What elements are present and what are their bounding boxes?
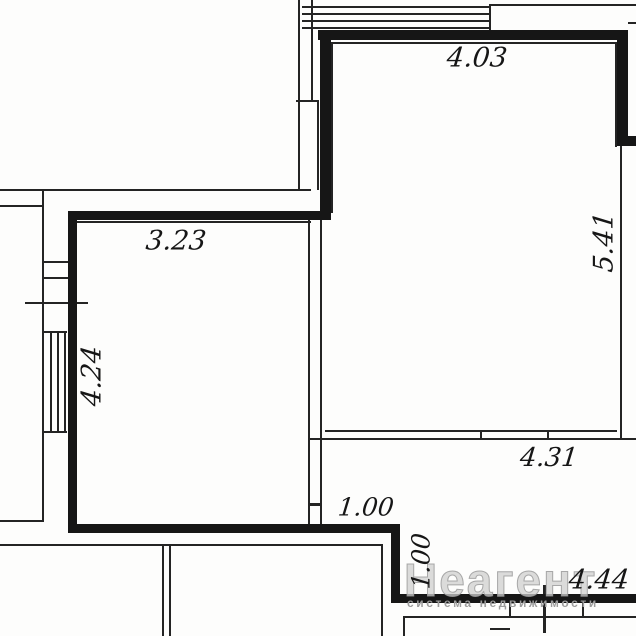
dim-hall-width: 4.31 <box>518 443 579 473</box>
line-mid-wall-right <box>320 220 322 525</box>
wall-big-room-top <box>318 30 628 40</box>
floor-plan-canvas: Неагент система недвижимости 4.035.413.2… <box>0 0 636 636</box>
wall-step <box>391 524 400 602</box>
line-mid-wall-tick <box>308 503 322 506</box>
wall-big-room-jog <box>617 136 636 146</box>
line-top-right-edge <box>489 4 636 6</box>
line-window-pane-3 <box>64 332 66 433</box>
line-below-big-room <box>308 438 636 440</box>
line-left-inner-face <box>331 42 333 213</box>
line-top-band-3 <box>302 20 490 22</box>
line-window-cap-bottom <box>43 431 67 433</box>
line-window-tick-2 <box>547 430 549 440</box>
wall-big-room-right <box>617 30 628 144</box>
line-lower-vert-right <box>381 544 383 636</box>
line-top-col2-left <box>298 101 300 190</box>
line-top-band-1 <box>302 6 490 8</box>
dim-step-width: 1.00 <box>337 493 396 522</box>
watermark-tagline: система недвижимости <box>407 596 599 610</box>
line-top-right-stub <box>628 22 636 24</box>
line-left-bottom-cap <box>0 520 44 522</box>
dim-step-height: 1.00 <box>407 532 436 591</box>
line-right-inner-vert <box>620 146 622 440</box>
dim-bottom-wall-width: 4.44 <box>567 565 630 596</box>
wall-big-room-left <box>320 30 331 220</box>
line-top-col-right <box>311 0 313 102</box>
line-window-pane-1 <box>50 332 52 433</box>
wall-left-room-top <box>68 211 331 220</box>
dim-left-room-height: 4.24 <box>77 344 108 407</box>
line-lower-long-h <box>0 544 383 546</box>
line-left-room-inner-top <box>75 221 311 223</box>
line-top-band-4 <box>302 27 490 29</box>
line-lower-partition-2 <box>169 546 171 636</box>
line-left-outer-vert <box>42 189 44 522</box>
line-balcony-left <box>403 616 405 636</box>
dim-top-room-height: 5.41 <box>589 210 620 273</box>
line-top-col-left <box>298 0 300 102</box>
dim-left-room-width: 3.23 <box>144 226 207 257</box>
line-left-wall-tick <box>25 302 88 304</box>
line-top-band-2 <box>302 13 490 15</box>
line-upper-left-h1 <box>0 189 311 191</box>
line-window-tick-1 <box>480 430 482 440</box>
line-top-col2-right <box>317 101 319 190</box>
line-balcony-h <box>403 616 636 618</box>
line-mid-wall-left <box>308 220 310 525</box>
wall-left-room-bottom <box>68 524 400 533</box>
line-window-cap-top <box>43 331 67 333</box>
line-lower-partition-1 <box>162 546 164 636</box>
line-balcony-stub <box>490 628 510 630</box>
line-big-room-inner-bot <box>325 430 617 432</box>
line-upper-left-h2 <box>0 205 44 207</box>
dim-top-room-width: 4.03 <box>445 43 508 74</box>
line-window-pane-2 <box>57 332 59 433</box>
line-top-band-end <box>489 5 491 31</box>
